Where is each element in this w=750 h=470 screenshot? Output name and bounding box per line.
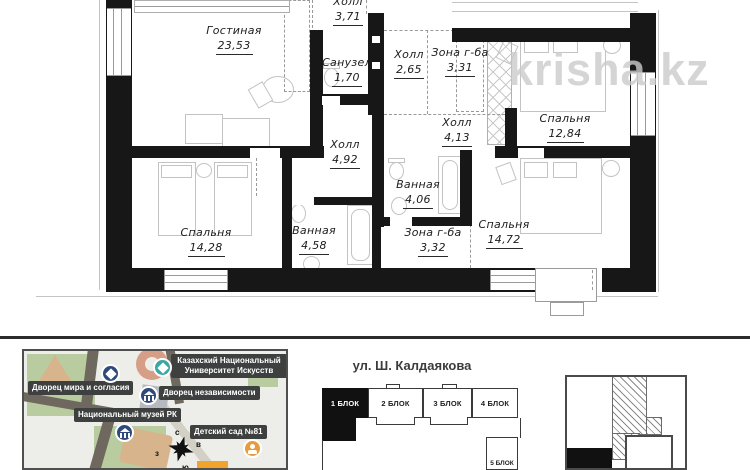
dresser-outline <box>535 268 597 302</box>
map-label-independence-palace: Дворец независимости <box>159 386 260 400</box>
room-label-bathroom-1: Ванная 4,06 <box>392 178 444 209</box>
hatched-area <box>612 375 647 435</box>
wall-segment <box>505 108 517 158</box>
room-label-wardrobe-zone-1: Зона г-ба 3,31 <box>430 46 490 77</box>
floor-plan: Гостиная 23,53 Холл 3,71 Санузел 1,70 Хо… <box>0 0 750 336</box>
room-label-bathroom-2: Ванная 4,58 <box>288 224 340 255</box>
room-label-bedroom-3: Спальня 14,72 <box>462 218 546 249</box>
dashed-partition <box>384 30 454 31</box>
room-label-wardrobe-zone-2: Зона г-ба 3,32 <box>402 226 464 257</box>
hatched-area <box>646 417 662 435</box>
pyramid-icon <box>101 364 120 383</box>
shaft-notch <box>372 36 380 43</box>
location-map: Казахский Национальный Университет Искус… <box>22 349 288 470</box>
wall-segment <box>452 28 638 42</box>
window <box>134 0 290 13</box>
wall-segment <box>372 197 381 268</box>
sofa-outline <box>185 114 223 144</box>
dashed-partition <box>592 270 593 290</box>
balcony-rail-line <box>452 11 638 12</box>
room-label-bedroom-2: Спальня 14,28 <box>158 226 254 257</box>
bathtub-outline <box>347 205 374 265</box>
pillow-outline <box>524 162 548 178</box>
block-entrance <box>376 417 415 425</box>
balcony-rail-line <box>452 2 638 3</box>
dashed-partition <box>256 158 257 196</box>
facade-line <box>99 0 100 290</box>
door-opening <box>322 96 340 105</box>
block-5: 5 БЛОК <box>486 437 518 470</box>
block-2: 2 БЛОК <box>368 388 423 418</box>
highlighted-section <box>567 448 612 470</box>
room-label-hall-4: Холл 4,92 <box>318 138 372 169</box>
door-opening <box>292 197 314 205</box>
site-outline <box>520 418 521 438</box>
rug-outline <box>495 162 517 185</box>
graduation-cap-icon <box>153 358 172 377</box>
compass-west: з <box>155 449 159 458</box>
screenshot-root: Гостиная 23,53 Холл 3,71 Санузел 1,70 Хо… <box>0 0 750 470</box>
window <box>164 270 228 290</box>
room-label-hall-3: Холл 4,13 <box>426 116 488 147</box>
map-label-kindergarten: Детский сад №81 <box>190 425 267 439</box>
block-1: 1 БЛОК <box>322 388 368 418</box>
street-name: ул. Ш. Калдаякова <box>350 358 474 373</box>
block-4: 4 БЛОК <box>472 388 518 418</box>
room-label-hall-2: Холл 2,65 <box>384 48 434 79</box>
compass-south: ю <box>182 463 189 470</box>
toilet-tank-outline <box>388 158 405 163</box>
section-divider <box>0 336 750 339</box>
site-outline <box>322 440 323 470</box>
door-opening <box>250 148 280 158</box>
dresser-outline <box>550 302 584 316</box>
compass-north: с <box>175 428 179 437</box>
window <box>490 270 538 290</box>
compass-east: в <box>196 440 201 449</box>
nightstand-outline <box>602 160 620 177</box>
room-label-hall-1: Холл 3,71 <box>320 0 376 26</box>
map-label-national-museum: Национальный музей РК <box>74 408 181 422</box>
wall-segment <box>460 150 472 226</box>
door-opening <box>390 217 412 226</box>
door-opening <box>518 148 544 158</box>
adjacent-section <box>625 435 673 470</box>
map-label-palace-of-peace: Дворец мира и согласия <box>28 381 133 395</box>
block-entrance <box>430 417 468 425</box>
pillow-outline <box>161 165 192 178</box>
wall-segment <box>128 146 324 158</box>
museum-icon <box>139 386 158 405</box>
block-1-extension <box>322 417 356 441</box>
map-label-university: Казахский Национальный Университет Искус… <box>171 354 287 378</box>
pillow-outline <box>553 162 577 178</box>
room-label-bathroom-small: Санузел 1,70 <box>318 56 376 87</box>
krisha-watermark: krisha.kz <box>508 44 710 96</box>
room-label-living-room: Гостиная 23,53 <box>178 24 290 55</box>
nightstand-outline <box>196 163 212 178</box>
room-label-bedroom-1: Спальня 12,84 <box>520 112 610 143</box>
kindergarten-icon <box>243 439 262 458</box>
toilet-outline <box>291 204 306 223</box>
window <box>107 8 131 76</box>
pillow-outline <box>217 165 248 178</box>
map-highlight-label <box>197 461 228 470</box>
block-3: 3 БЛОК <box>423 388 472 418</box>
dashed-partition <box>384 114 505 115</box>
museum-icon <box>115 423 134 442</box>
block-position-diagram <box>565 375 687 470</box>
